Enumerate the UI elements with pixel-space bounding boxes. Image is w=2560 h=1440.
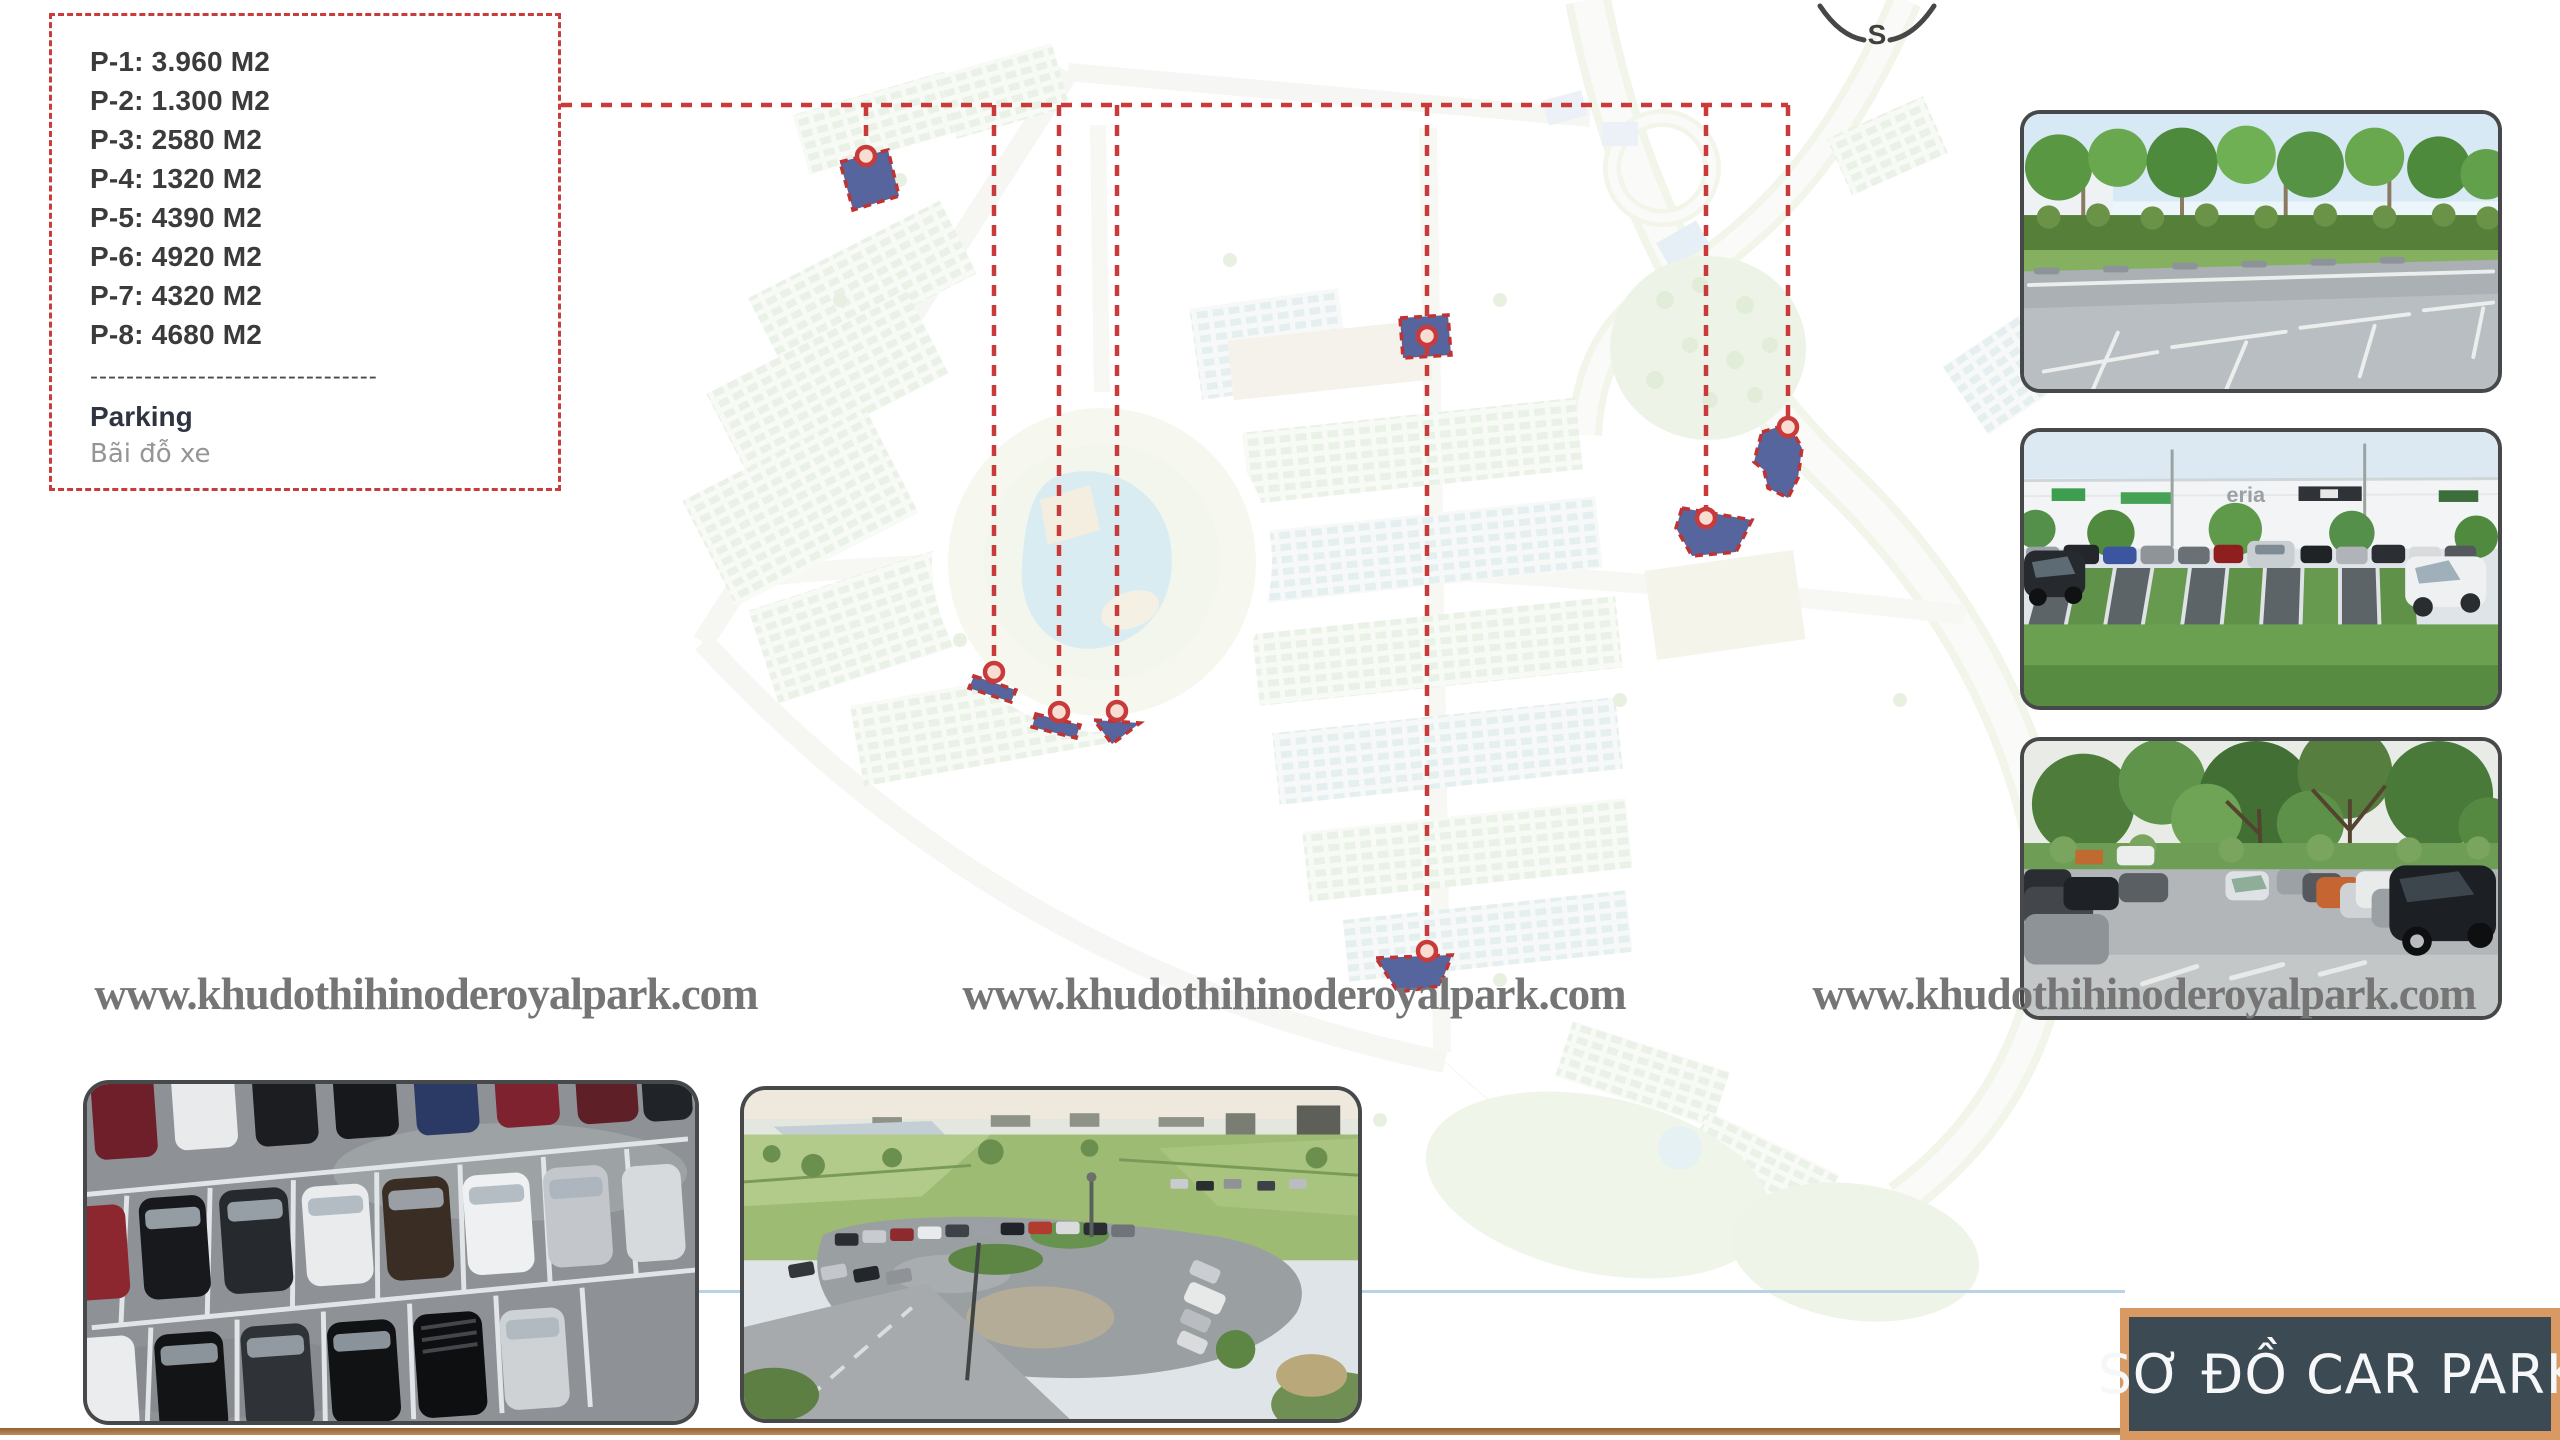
legend-item-p8: P-8: 4680 M2 xyxy=(90,315,558,354)
plot-markers xyxy=(857,147,1797,960)
legend-item-p4: P-4: 1320 M2 xyxy=(90,159,558,198)
photo-empty-parking-bays xyxy=(2020,110,2502,393)
legend-subtitle: Bãi đỗ xe xyxy=(90,436,558,472)
watermark-center: www.khudothihinoderoyalpark.com xyxy=(926,968,1662,1020)
parking-plots xyxy=(840,150,1802,992)
photo-retail-car-park: eria xyxy=(2020,428,2502,710)
photo-rural-car-park xyxy=(740,1086,1362,1423)
slide-title: SƠ ĐỒ CAR PARK xyxy=(2098,1343,2560,1406)
parking-legend-box: P-1: 3.960 M2 P-2: 1.300 M2 P-3: 2580 M2… xyxy=(49,13,561,491)
legend-item-p1: P-1: 3.960 M2 xyxy=(90,42,558,81)
legend-item-p5: P-5: 4390 M2 xyxy=(90,198,558,237)
watermark-left: www.khudothihinoderoyalpark.com xyxy=(58,968,794,1020)
legend-title: Parking xyxy=(90,398,558,436)
legend-item-p3: P-3: 2580 M2 xyxy=(90,120,558,159)
compass-south-label: S xyxy=(1868,19,1887,50)
legend-item-p2: P-2: 1.300 M2 xyxy=(90,81,558,120)
legend-item-p7: P-7: 4320 M2 xyxy=(90,276,558,315)
compass-south-icon: S xyxy=(1812,0,1942,50)
slide-title-box: SƠ ĐỒ CAR PARK xyxy=(2120,1308,2560,1440)
white-hatchback-car xyxy=(2405,556,2486,616)
legend-separator: -------------------------------- xyxy=(90,362,558,392)
legend-item-p6: P-6: 4920 M2 xyxy=(90,237,558,276)
dashed-leader-lines xyxy=(561,105,1788,944)
watermark-right: www.khudothihinoderoyalpark.com xyxy=(1776,968,2512,1020)
photo-aerial-parked-cars xyxy=(83,1080,699,1425)
